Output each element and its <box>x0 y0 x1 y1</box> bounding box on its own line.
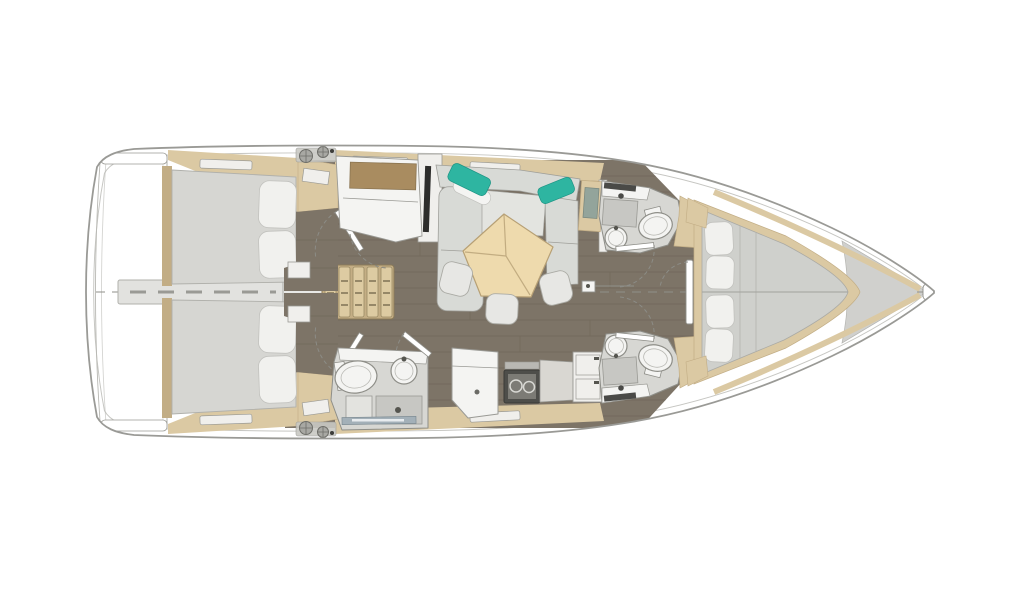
aft-cabin-starboard <box>162 293 363 434</box>
pillow <box>705 256 734 290</box>
cabin-door <box>686 260 693 324</box>
faucet <box>402 357 407 362</box>
bed-headboard <box>162 166 172 286</box>
interior <box>94 147 934 438</box>
aft-cabin-port <box>162 150 363 291</box>
handle <box>594 381 599 384</box>
handle <box>594 357 599 360</box>
deck-winches-starboard <box>296 422 336 438</box>
stool <box>485 293 519 325</box>
hull-window <box>200 159 252 170</box>
cabinet-glass <box>583 188 599 219</box>
faucet <box>614 226 618 230</box>
shower-drain <box>395 407 401 413</box>
floor-plan-svg <box>0 0 1024 600</box>
galley-island <box>452 348 498 418</box>
shower-head <box>618 193 624 199</box>
galley-counter <box>540 360 573 402</box>
deck-winches <box>296 147 336 163</box>
stove-hood <box>505 362 539 369</box>
chart-table <box>350 162 417 190</box>
shower-pan <box>602 199 638 227</box>
pillow <box>258 180 297 228</box>
wardrobe <box>298 158 338 212</box>
bedside-seat <box>288 262 310 278</box>
pillow <box>704 221 734 255</box>
sink-drain <box>475 390 480 395</box>
yacht-floor-plan-image <box>0 0 1024 600</box>
